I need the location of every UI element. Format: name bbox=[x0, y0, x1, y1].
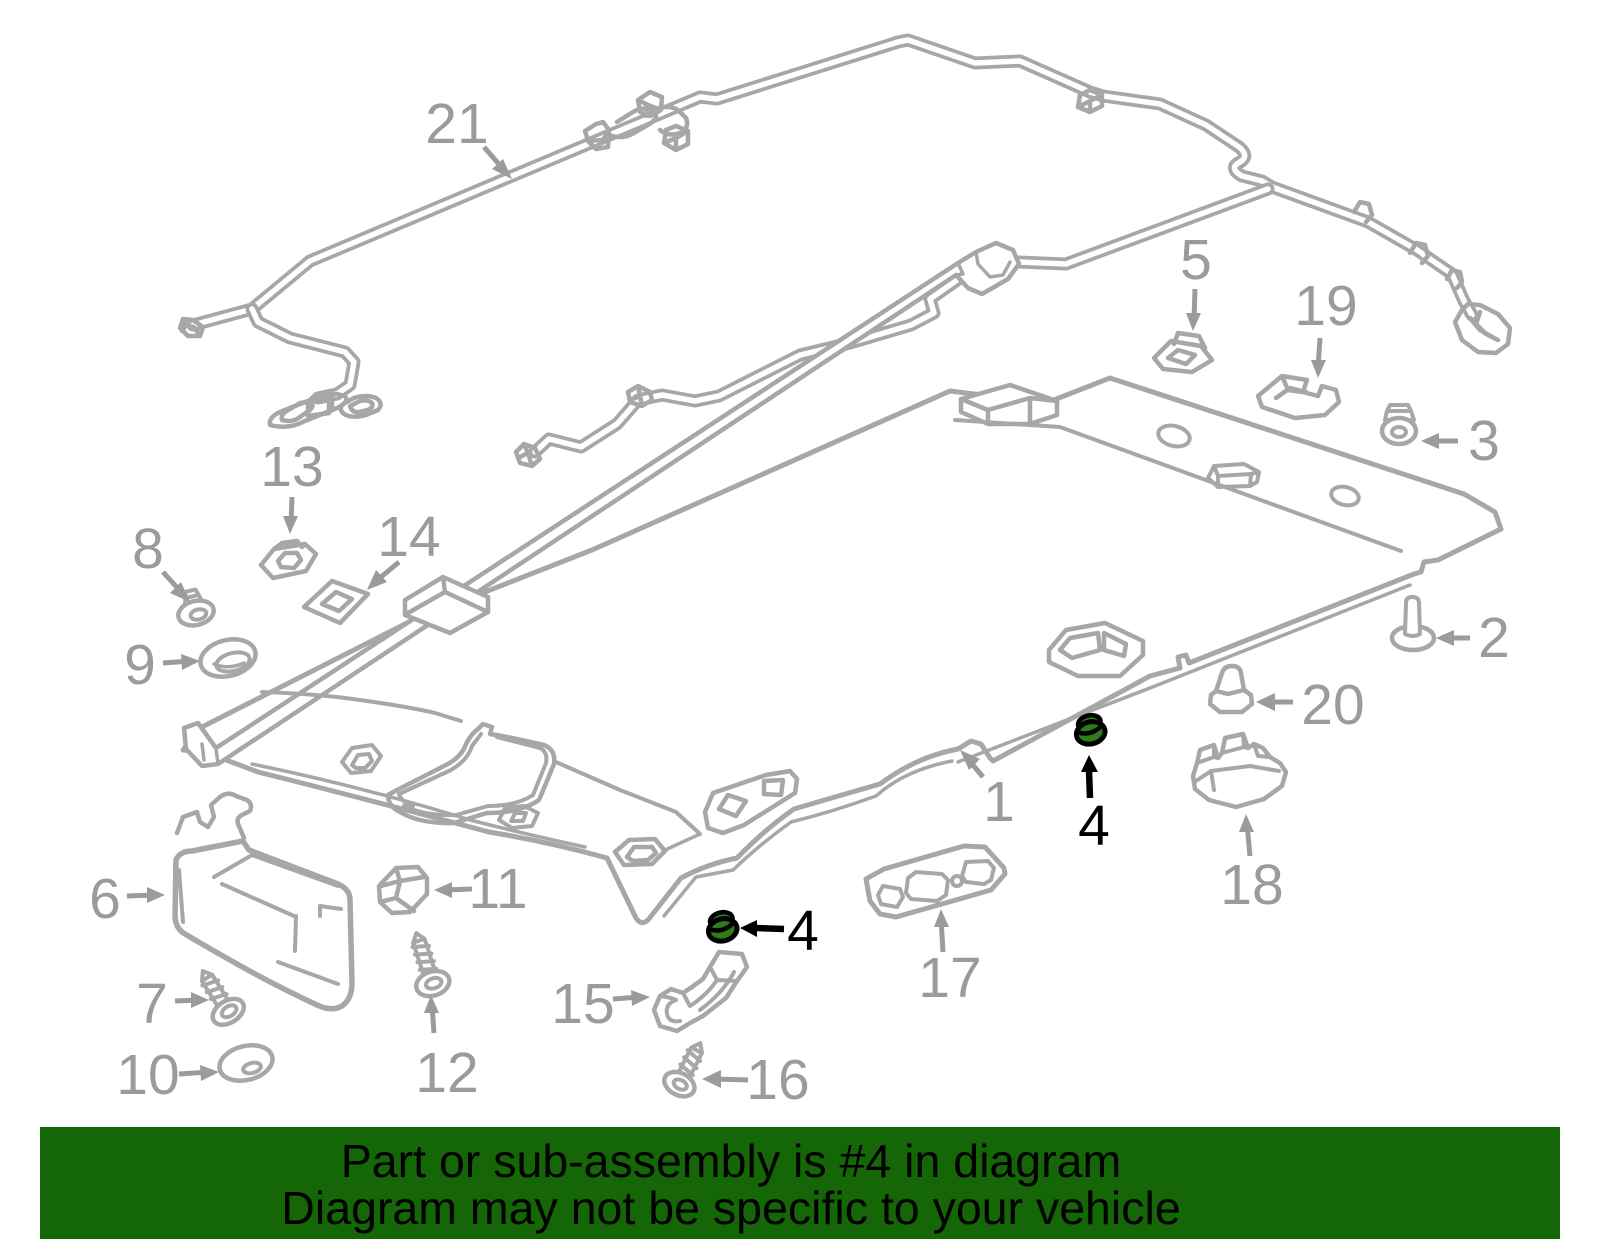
svg-text:10: 10 bbox=[116, 1043, 179, 1107]
svg-text:7: 7 bbox=[136, 972, 168, 1036]
svg-text:12: 12 bbox=[415, 1041, 478, 1105]
svg-text:19: 19 bbox=[1294, 274, 1357, 338]
svg-text:4: 4 bbox=[1078, 794, 1110, 858]
svg-text:17: 17 bbox=[918, 946, 981, 1010]
svg-text:1: 1 bbox=[983, 770, 1015, 834]
svg-text:15: 15 bbox=[551, 972, 614, 1036]
svg-text:8: 8 bbox=[132, 517, 164, 581]
svg-text:2: 2 bbox=[1478, 606, 1510, 670]
svg-text:Diagram may not be specific to: Diagram may not be specific to your vehi… bbox=[281, 1182, 1180, 1234]
svg-text:6: 6 bbox=[89, 867, 121, 931]
svg-text:5: 5 bbox=[1180, 228, 1212, 292]
svg-text:14: 14 bbox=[377, 505, 440, 569]
svg-text:11: 11 bbox=[468, 857, 527, 921]
svg-text:4: 4 bbox=[787, 899, 819, 963]
svg-text:18: 18 bbox=[1220, 853, 1283, 917]
svg-text:16: 16 bbox=[746, 1048, 809, 1112]
svg-text:9: 9 bbox=[124, 633, 156, 697]
svg-text:Part or sub-assembly is #4 in: Part or sub-assembly is #4 in diagram bbox=[341, 1135, 1122, 1187]
svg-text:13: 13 bbox=[260, 435, 323, 499]
svg-text:3: 3 bbox=[1468, 409, 1500, 473]
svg-text:20: 20 bbox=[1301, 673, 1364, 737]
svg-text:21: 21 bbox=[425, 92, 488, 156]
